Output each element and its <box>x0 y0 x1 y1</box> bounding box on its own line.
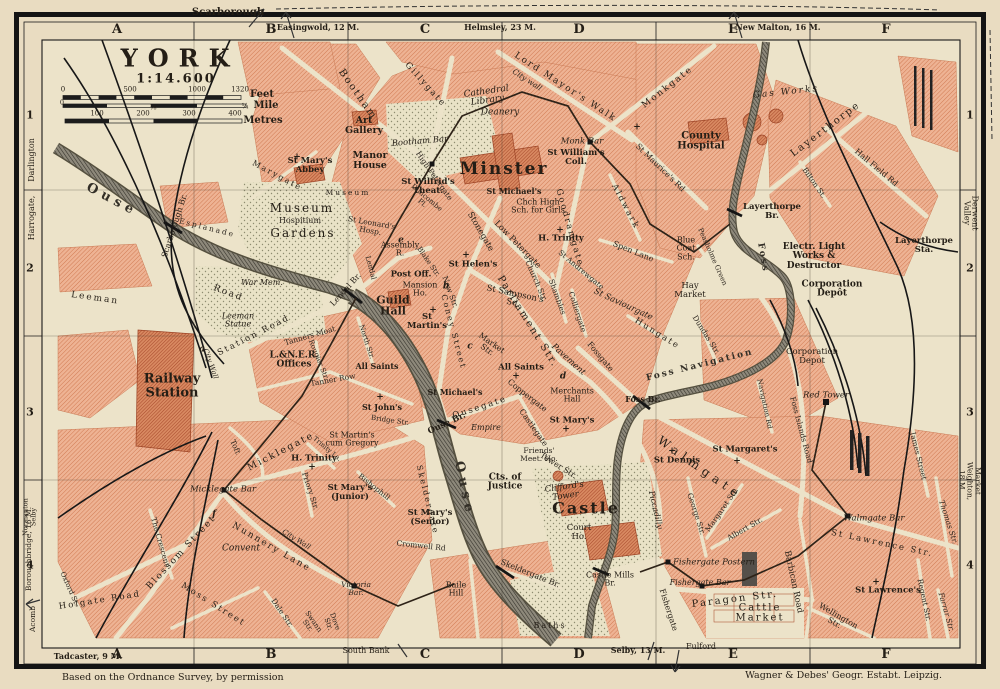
credit-ordnance-survey: Based on the Ordnance Survey, by permiss… <box>62 672 284 683</box>
credit-publisher: Wagner & Debes' Geogr. Estabt. Leipzig. <box>745 670 942 681</box>
map-title: YORK <box>111 44 240 73</box>
map-base-art <box>0 0 1000 689</box>
barracks-block <box>742 552 757 586</box>
antique-map-york: YORK 1:14.600 ScarboroughEasingwold, 12 … <box>0 0 1000 689</box>
map-scale-ratio: 1:14.600 <box>136 72 216 87</box>
